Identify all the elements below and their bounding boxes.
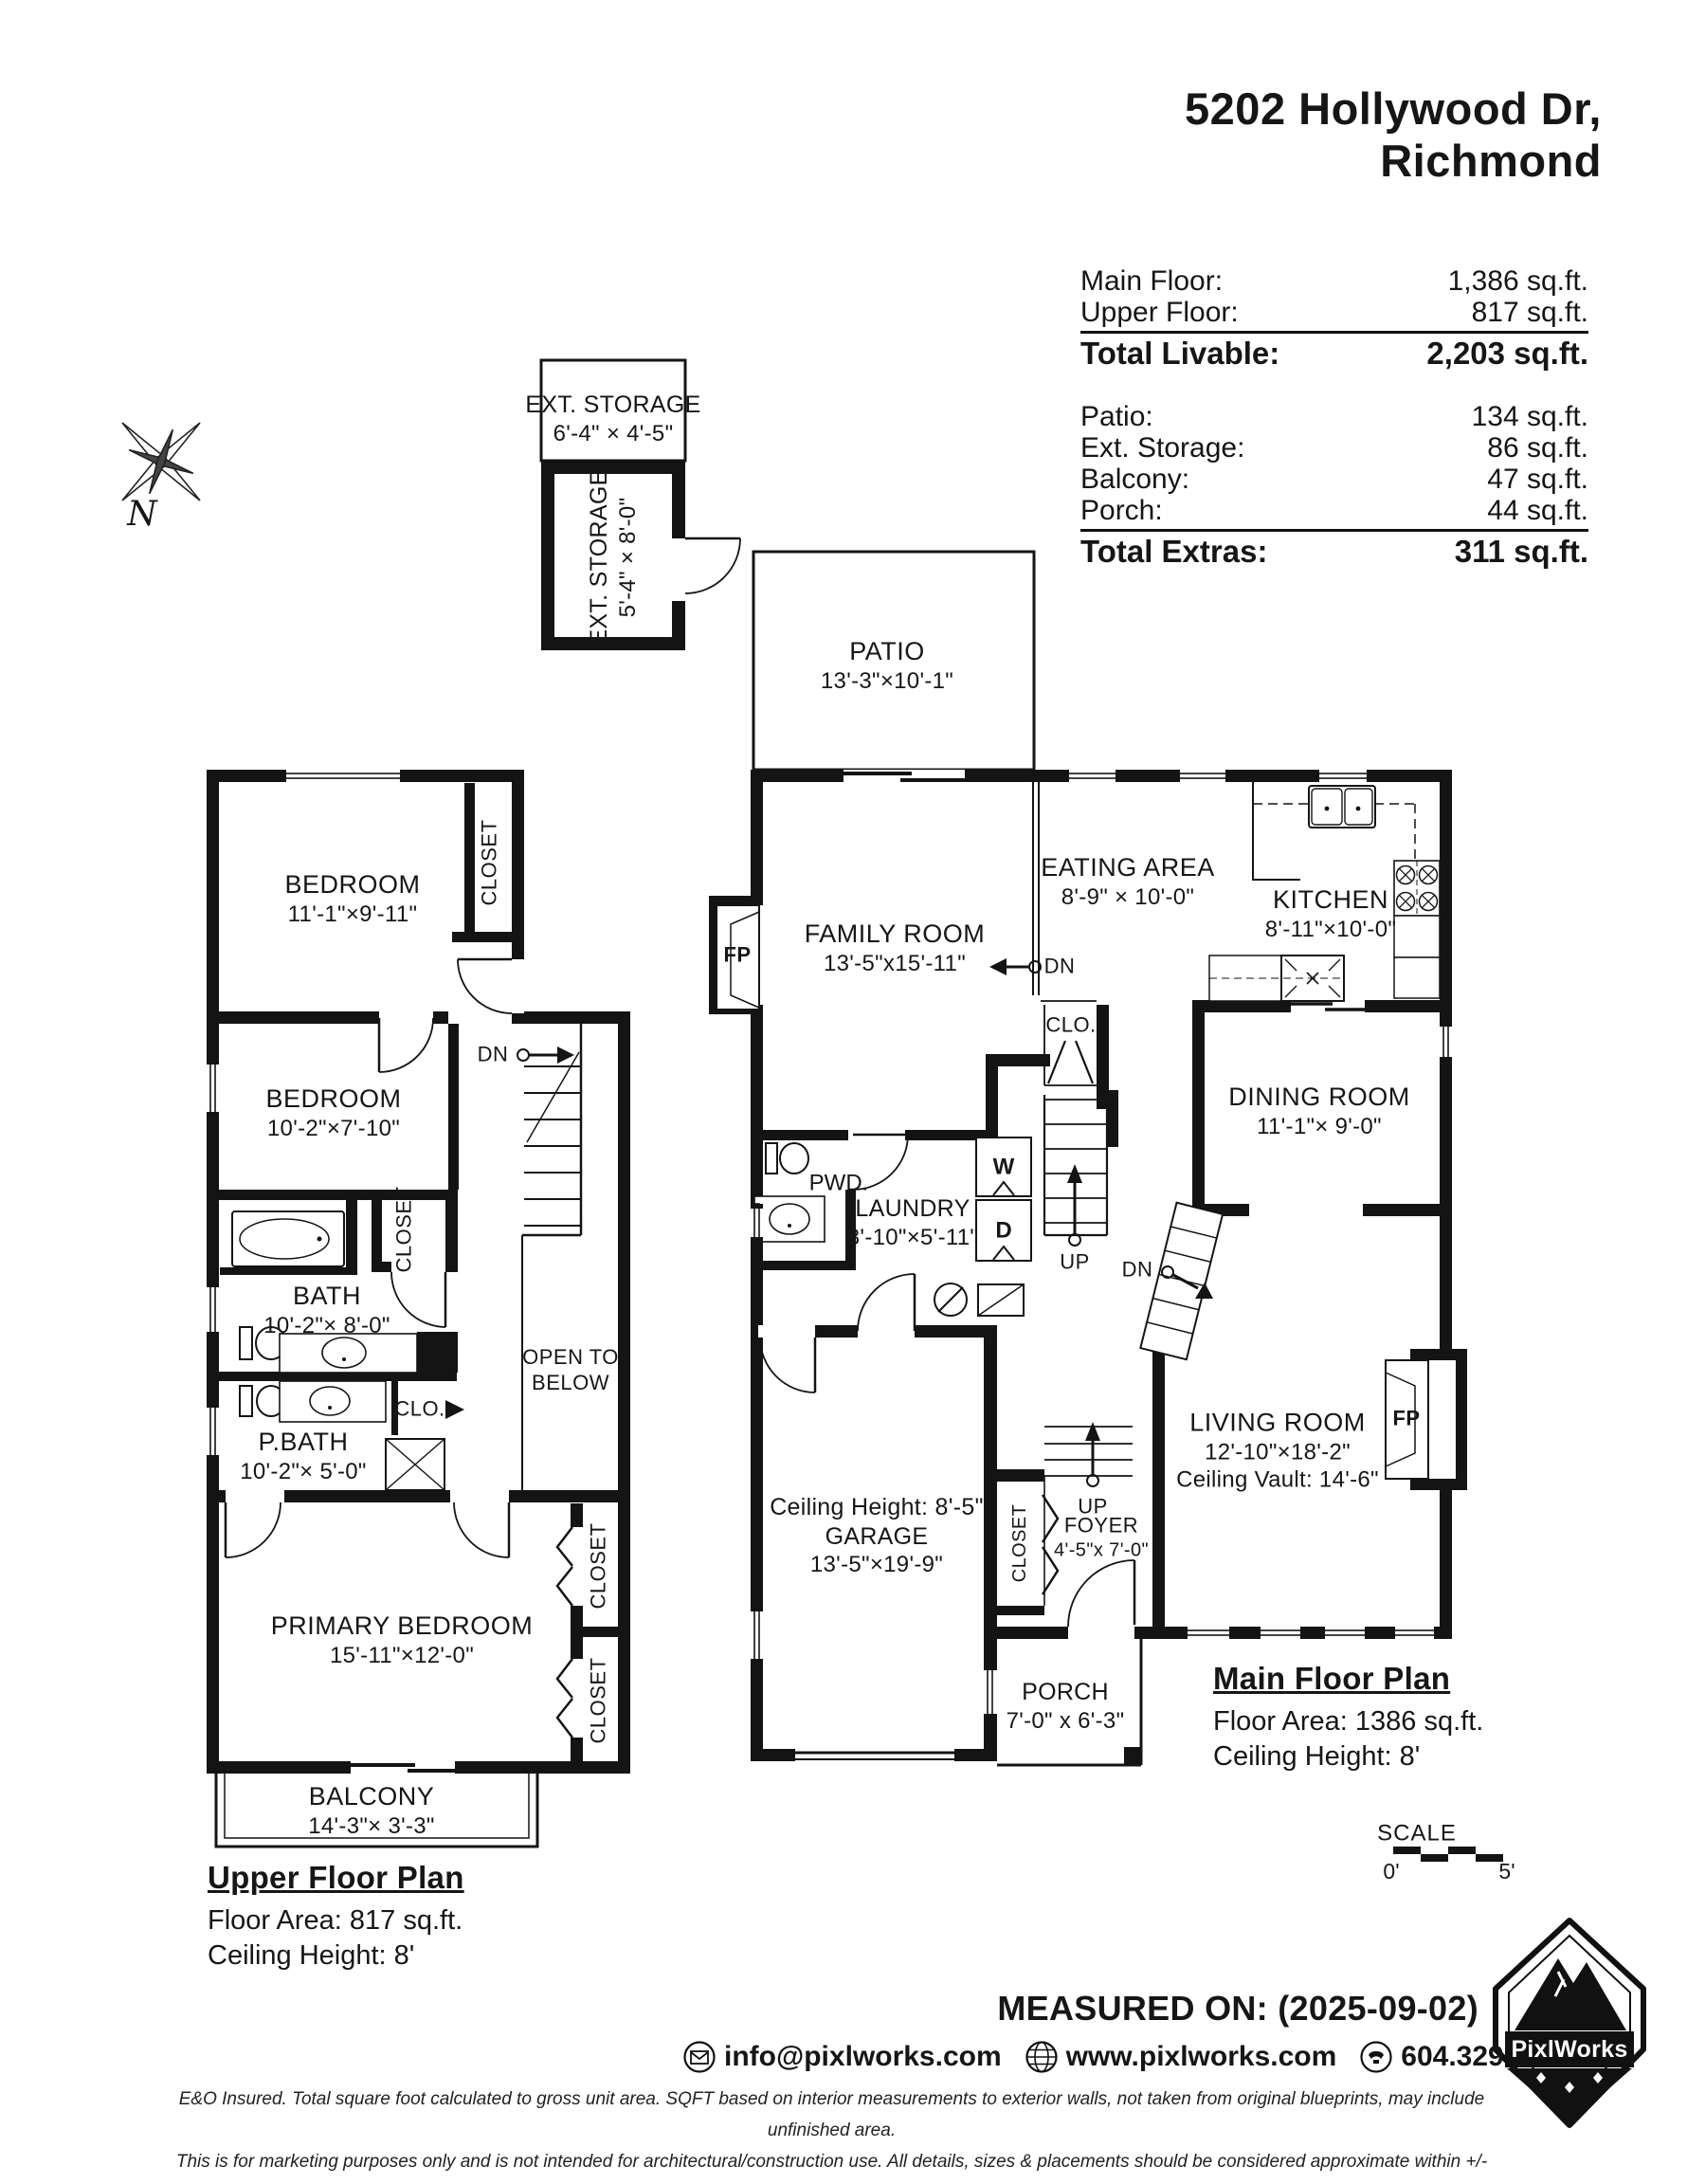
summary-row: Balcony:47 sq.ft. — [1080, 464, 1588, 495]
pixlworks-logo-icon — [1496, 1920, 1643, 2125]
area-summary: Main Floor:1,386 sq.ft. Upper Floor:817 … — [1080, 265, 1588, 569]
scale-start-label: 0' — [1383, 1858, 1399, 1884]
room-label-porch: PORCH7'-0" x 6'-3" — [1007, 1678, 1125, 1735]
kitchen-sink-icon — [1309, 775, 1375, 828]
compass-north-label: N — [127, 494, 157, 536]
room-label-bedroom-2: BEDROOM10'-2"×7'-10" — [265, 1083, 401, 1142]
pwd-toilet-icon — [766, 1143, 808, 1174]
contact-email: info@pixlworks.com — [682, 2040, 1002, 2074]
summary-total-livable: Total Livable:2,203 sq.ft. — [1080, 331, 1588, 371]
room-label-kitchen: KITCHEN8'-11"×10'-0" — [1265, 884, 1396, 943]
pixlworks-brand-label: PixlWorks — [1505, 2031, 1634, 2067]
scale-bar — [1393, 1847, 1503, 1862]
room-label-family-room: FAMILY ROOM13'-5"x15'-11" — [805, 919, 986, 977]
upper-floor-caption: Upper Floor Plan Floor Area: 817 sq.ft. … — [208, 1860, 464, 1974]
room-label-garage: Ceiling Height: 8'-5"GARAGE13'-5"×19'-9" — [770, 1493, 984, 1578]
closet-label: CLOSET — [392, 1186, 418, 1272]
room-label-primary-bedroom: PRIMARY BEDROOM15'-11"×12'-0" — [271, 1611, 534, 1669]
clo-label-main: CLO. — [1045, 1013, 1096, 1039]
fireplace-label: FP — [1392, 1407, 1420, 1432]
fireplace-label: FP — [723, 943, 751, 969]
summary-row: Main Floor:1,386 sq.ft. — [1080, 265, 1588, 297]
room-label-foyer: FOYER4'-5"x 7'-0" — [1054, 1513, 1149, 1561]
upper-clo-arrow-icon — [445, 1400, 464, 1419]
upper-stairs — [522, 1024, 581, 1490]
address-line-1: 5202 Hollywood Dr, — [1185, 83, 1602, 136]
dn-label-basement: DN — [1122, 1258, 1153, 1283]
room-label-patio: PATIO13'-3"×10'-1" — [821, 636, 953, 695]
shower-icon — [386, 1439, 444, 1490]
room-label-dining-room: DINING ROOM11'-1"× 9'-0" — [1228, 1082, 1410, 1140]
scale-end-label: 5' — [1498, 1858, 1515, 1884]
dn-label-upper: DN — [478, 1043, 509, 1068]
floorplan-page: 5202 Hollywood Dr, Richmond Main Floor:1… — [0, 0, 1687, 2184]
measured-on-label: MEASURED ON: (2025-09-02) — [997, 1989, 1478, 2029]
globe-icon — [1025, 2040, 1059, 2074]
contact-website: www.pixlworks.com — [1025, 2040, 1337, 2074]
email-text: info@pixlworks.com — [724, 2041, 1002, 2073]
room-label-pbath: P.BATH10'-2"× 5'-0" — [240, 1427, 367, 1485]
stair-railing — [1033, 782, 1039, 995]
pbath-sink-icon — [280, 1381, 386, 1422]
washer-label: W — [993, 1153, 1015, 1180]
kitchen-island-dishwasher-icon — [1209, 955, 1344, 1001]
upper-dn-arrow-icon — [517, 1046, 574, 1064]
closet-label-foyer: CLOSET — [1008, 1504, 1031, 1582]
clo-label-upper: CLO. — [394, 1397, 444, 1423]
pwd-sink-icon — [754, 1196, 825, 1242]
dryer-label: D — [995, 1216, 1011, 1244]
room-label-laundry: LAUNDRY8'-10"×5'-11" — [847, 1194, 978, 1251]
fine-print: E&O Insured. Total square foot calculate… — [171, 2084, 1493, 2184]
balcony-sliding-door — [351, 1761, 455, 1774]
summary-total-extras: Total Extras:311 sq.ft. — [1080, 529, 1588, 569]
up-label-main: UP — [1060, 1250, 1090, 1276]
summary-row: Patio:134 sq.ft. — [1080, 401, 1588, 432]
closet-label: CLOSET — [587, 1522, 612, 1609]
room-label-eating-area: EATING AREA8'-9" × 10'-0" — [1041, 852, 1215, 911]
summary-row: Porch:44 sq.ft. — [1080, 495, 1588, 526]
website-text: www.pixlworks.com — [1066, 2041, 1337, 2073]
main-up-arrow-icon — [1067, 1164, 1082, 1246]
room-label-ext-storage-side: EXT. STORAGE5'-4" × 8'-0" — [585, 469, 642, 645]
summary-row: Ext. Storage:86 sq.ft. — [1080, 432, 1588, 464]
room-label-bedroom-1: BEDROOM11'-1"×9'-11" — [284, 869, 420, 928]
pbath-toilet-icon — [240, 1386, 285, 1416]
fine-print-line-2: This is for marketing purposes only and … — [171, 2146, 1493, 2184]
room-label-balcony: BALCONY14'-3"× 3'-3" — [308, 1781, 435, 1840]
page-title: 5202 Hollywood Dr, Richmond — [1185, 83, 1602, 188]
closet-label: CLOSET — [587, 1657, 612, 1743]
compass-rose-icon — [122, 423, 200, 500]
address-line-2: Richmond — [1185, 136, 1602, 188]
summary-row: Upper Floor:817 sq.ft. — [1080, 297, 1588, 328]
room-label-living-room: LIVING ROOM12'-10"×18'-2"Ceiling Vault: … — [1176, 1407, 1379, 1493]
closet-label: CLOSET — [478, 819, 503, 905]
fine-print-line-1: E&O Insured. Total square foot calculate… — [171, 2084, 1493, 2146]
stove-icon — [1394, 861, 1440, 998]
bathtub-icon — [232, 1211, 344, 1266]
phone-icon — [1359, 2040, 1393, 2074]
contact-row: info@pixlworks.com www.pixlworks.com 604… — [682, 2040, 1483, 2074]
main-floor-caption: Main Floor Plan Floor Area: 1386 sq.ft. … — [1213, 1661, 1483, 1774]
bath-sink-icon — [280, 1334, 417, 1373]
pwd-label: PWD. — [809, 1169, 869, 1196]
dn-label-main: DN — [1044, 955, 1076, 980]
room-label-ext-storage-top: EXT. STORAGE6'-4" × 4'-5" — [525, 391, 700, 447]
room-label-bath: BATH10'-2"× 8'-0" — [263, 1281, 390, 1339]
envelope-icon — [682, 2040, 717, 2074]
laundry-tub-icon — [934, 1283, 1024, 1316]
scale-label: SCALE — [1377, 1819, 1457, 1847]
open-to-below-label: OPEN TOBELOW — [522, 1345, 619, 1396]
